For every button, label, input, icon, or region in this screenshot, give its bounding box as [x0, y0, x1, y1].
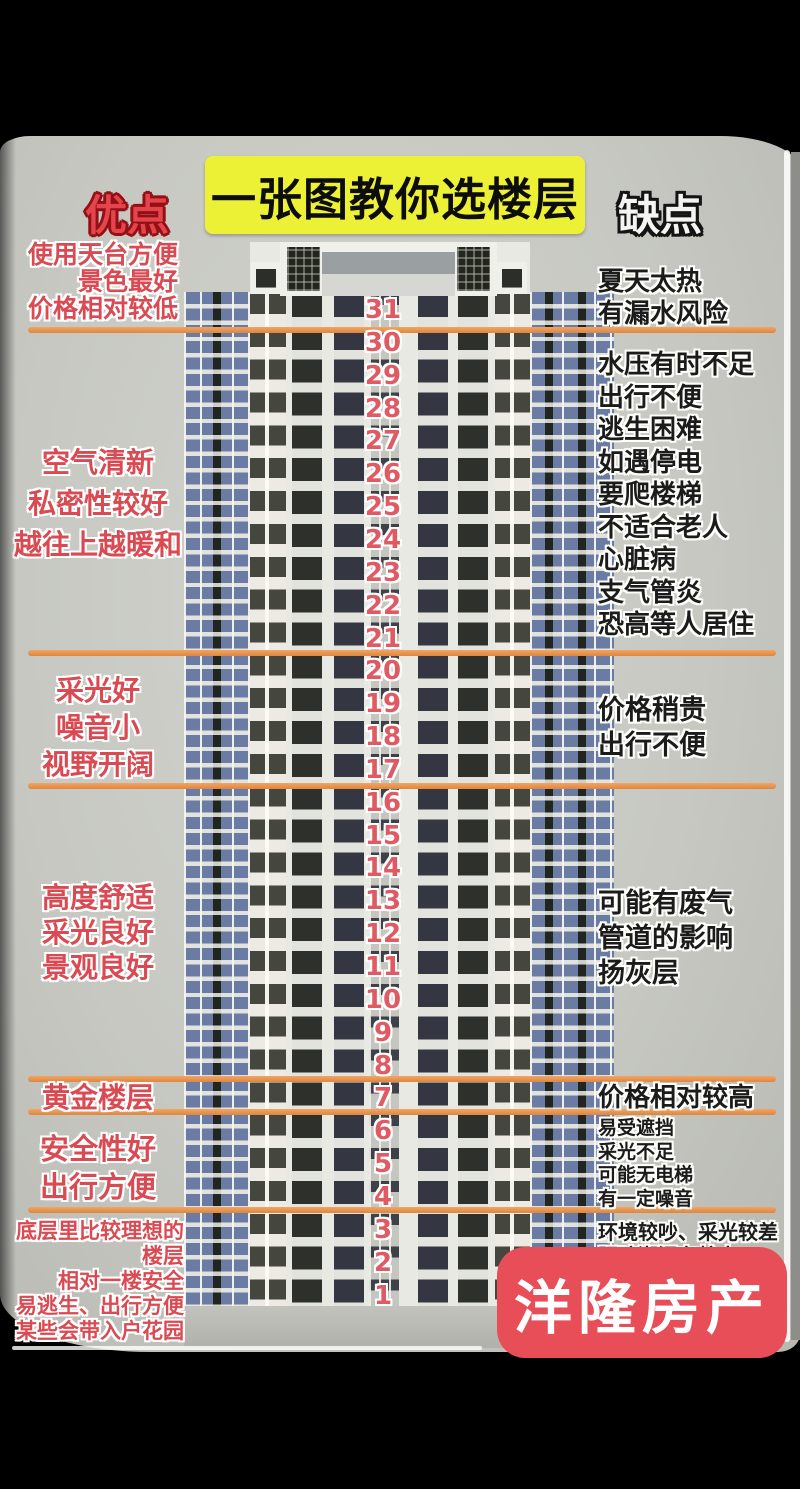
floor-number: 1: [353, 1280, 413, 1312]
disadvantage-line: 环境较吵、采光较差: [598, 1220, 798, 1244]
disadvantage-line: 逃生困难: [598, 414, 798, 447]
disadvantage-block-floors-17-20: 价格稍贵出行不便: [598, 693, 798, 763]
floor-number: 13: [353, 885, 413, 917]
disadvantage-line: 易受遮挡: [598, 1117, 798, 1141]
title-banner: 一张图教你选楼层: [205, 156, 585, 234]
advantage-line: 出行方便: [4, 1168, 192, 1206]
floor-number: 24: [353, 524, 413, 556]
advantage-line: 越往上越暖和: [4, 524, 192, 565]
building-window-column: [458, 294, 488, 1306]
disadvantage-line: 可能有废气: [598, 886, 798, 921]
building-window-strip: [545, 292, 553, 1306]
advantage-line: 使用天台方便: [4, 241, 178, 268]
floor-number: 14: [353, 852, 413, 884]
advantage-block-floors-4-6: 安全性好出行方便: [4, 1130, 192, 1206]
disadvantage-line: 价格相对较高: [598, 1083, 798, 1113]
floor-number: 22: [353, 590, 413, 622]
floor-number: 2: [353, 1247, 413, 1279]
floor-number: 5: [353, 1148, 413, 1180]
advantage-line: 空气清新: [4, 442, 192, 483]
floor-number: 20: [353, 655, 413, 687]
floor-number: 18: [353, 721, 413, 753]
disadvantage-line: 夏天太热: [598, 266, 798, 298]
advantage-line: 易逃生、出行方便: [4, 1294, 184, 1319]
advantages-header: 优点: [62, 182, 192, 243]
building-roof-band: [322, 252, 455, 274]
building-roof-lattice: [287, 247, 320, 291]
advantage-block-floor-7: 黄金楼层: [4, 1082, 192, 1114]
advantage-line: 采光良好: [4, 915, 192, 950]
disadvantage-block-floors-4-6: 易受遮挡采光不足可能无电梯有一定噪音: [598, 1117, 798, 1211]
floor-number: 17: [353, 754, 413, 786]
floor-number: 28: [353, 393, 413, 425]
advantage-line: 噪音小: [4, 709, 192, 746]
page-left-shadow: [0, 136, 16, 1352]
disadvantage-block-floor-7: 价格相对较高: [598, 1083, 798, 1113]
floor-number: 10: [353, 984, 413, 1016]
page-right-edge-highlight: [784, 150, 790, 1342]
disadvantage-line: 出行不便: [598, 728, 798, 763]
watermark-text: 洋隆房产: [514, 1261, 770, 1345]
advantage-line: 相对一楼安全: [4, 1269, 184, 1294]
disadvantage-line: 心脏病: [598, 544, 798, 577]
disadvantage-line: 不适合老人: [598, 512, 798, 545]
advantage-line: 高度舒适: [4, 880, 192, 915]
advantage-line: 采光好: [4, 672, 192, 709]
floor-number: 11: [353, 951, 413, 983]
screenshot-root: { "header": { "advantages_label": "优点", …: [0, 0, 800, 1489]
floor-number: 21: [353, 623, 413, 655]
building-roof-side-box: [251, 262, 281, 294]
disadvantage-block-floors-21-30: 水压有时不足出行不便逃生困难如遇停电要爬楼梯不适合老人心脏病支气管炎恐高等人居住: [598, 349, 798, 642]
building-window-strip: [578, 292, 586, 1306]
floor-number: 30: [353, 327, 413, 359]
advantage-block-floors-17-20: 采光好噪音小视野开阔: [4, 672, 192, 783]
disadvantage-line: 有漏水风险: [598, 298, 798, 330]
floor-number: 31: [353, 294, 413, 326]
building-window-column: [418, 294, 448, 1306]
advantage-line: 景观良好: [4, 950, 192, 985]
floor-number: 8: [353, 1050, 413, 1082]
building-window-strip: [213, 292, 221, 1306]
floor-number: 26: [353, 458, 413, 490]
disadvantage-line: 采光不足: [598, 1141, 798, 1165]
floor-number: 25: [353, 491, 413, 523]
floor-number-column: 3130292827262524232221201918171615141312…: [353, 294, 413, 1314]
advantage-block-floors-21-30: 空气清新私密性较好越往上越暖和: [4, 442, 192, 565]
floor-number: 6: [353, 1115, 413, 1147]
disadvantage-line: 支气管炎: [598, 577, 798, 610]
disadvantage-line: 扬灰层: [598, 956, 798, 991]
advantage-line: 价格相对较低: [4, 295, 178, 322]
building-balcony-column: [250, 294, 286, 1306]
floor-number: 4: [353, 1181, 413, 1213]
building-roof-band: [322, 274, 455, 296]
advantage-line: 某些会带入户花园: [4, 1319, 184, 1344]
disadvantage-line: 价格稍贵: [598, 693, 798, 728]
disadvantage-block-floor-31: 夏天太热有漏水风险: [598, 266, 798, 330]
floor-number: 9: [353, 1017, 413, 1049]
disadvantage-line: 有一定噪音: [598, 1188, 798, 1212]
building-left-wing: [184, 292, 250, 1306]
disadvantage-line: 水压有时不足: [598, 349, 798, 382]
title-text: 一张图教你选楼层: [211, 163, 579, 228]
disadvantage-line: 出行不便: [598, 382, 798, 415]
floor-number: 16: [353, 787, 413, 819]
floor-number: 23: [353, 557, 413, 589]
floor-number: 15: [353, 820, 413, 852]
building-roof-side-box: [497, 262, 527, 294]
building-roof-lattice: [457, 247, 490, 291]
building-balcony-column: [495, 294, 530, 1306]
disadvantage-block-floors-8-16: 可能有废气管道的影响扬灰层: [598, 886, 798, 991]
advantage-line: 黄金楼层: [4, 1082, 192, 1114]
floor-number: 27: [353, 425, 413, 457]
advantage-line: 底层里比较理想的楼层: [4, 1219, 184, 1269]
page-right-edge: [791, 152, 800, 1340]
advantage-block-floor-31: 使用天台方便景色最好价格相对较低: [4, 241, 192, 322]
advantage-line: 视野开阔: [4, 746, 192, 783]
disadvantage-line: 可能无电梯: [598, 1164, 798, 1188]
watermark-badge: 洋隆房产: [497, 1247, 787, 1358]
advantage-line: 景色最好: [4, 268, 178, 295]
advantage-block-floors-8-16: 高度舒适采光良好景观良好: [4, 880, 192, 985]
building-window-column: [292, 294, 322, 1306]
disadvantage-line: 要爬楼梯: [598, 479, 798, 512]
advantage-block-floors-1-3: 底层里比较理想的楼层相对一楼安全易逃生、出行方便某些会带入户花园: [4, 1219, 192, 1344]
floor-number: 7: [353, 1082, 413, 1114]
page-bottom-edge-highlight: [12, 1346, 482, 1350]
advantage-line: 私密性较好: [4, 483, 192, 524]
disadvantage-line: 管道的影响: [598, 921, 798, 956]
floor-number: 3: [353, 1214, 413, 1246]
floor-number: 19: [353, 688, 413, 720]
disadvantage-line: 恐高等人居住: [598, 609, 798, 642]
floor-number: 29: [353, 360, 413, 392]
advantage-line: 安全性好: [4, 1130, 192, 1168]
disadvantages-header: 缺点: [600, 182, 720, 243]
disadvantage-line: 如遇停电: [598, 447, 798, 480]
floor-number: 12: [353, 918, 413, 950]
